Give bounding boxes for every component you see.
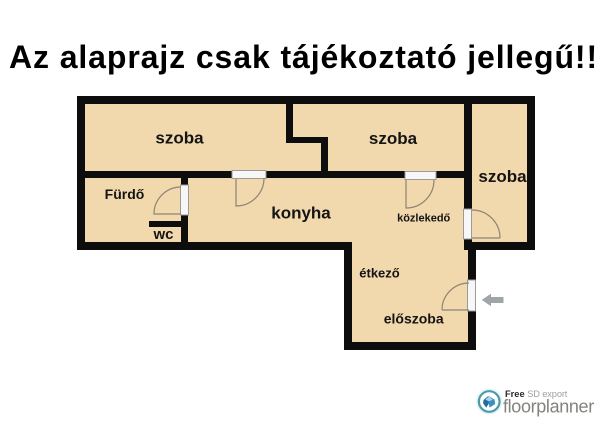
svg-text:floorplanner: floorplanner <box>503 397 594 417</box>
svg-text:közlekedő: közlekedő <box>397 213 450 225</box>
svg-text:előszoba: előszoba <box>384 311 444 327</box>
svg-text:wc: wc <box>152 226 173 243</box>
svg-text:étkező: étkező <box>359 266 400 281</box>
svg-text:Fürdő: Fürdő <box>105 186 145 202</box>
svg-text:szoba: szoba <box>478 167 527 186</box>
svg-text:szoba: szoba <box>369 129 418 148</box>
svg-text:szoba: szoba <box>155 129 204 148</box>
svg-text:Az alaprajz csak tájékoztató j: Az alaprajz csak tájékoztató jellegű!! <box>9 39 598 75</box>
svg-text:konyha: konyha <box>271 204 331 223</box>
